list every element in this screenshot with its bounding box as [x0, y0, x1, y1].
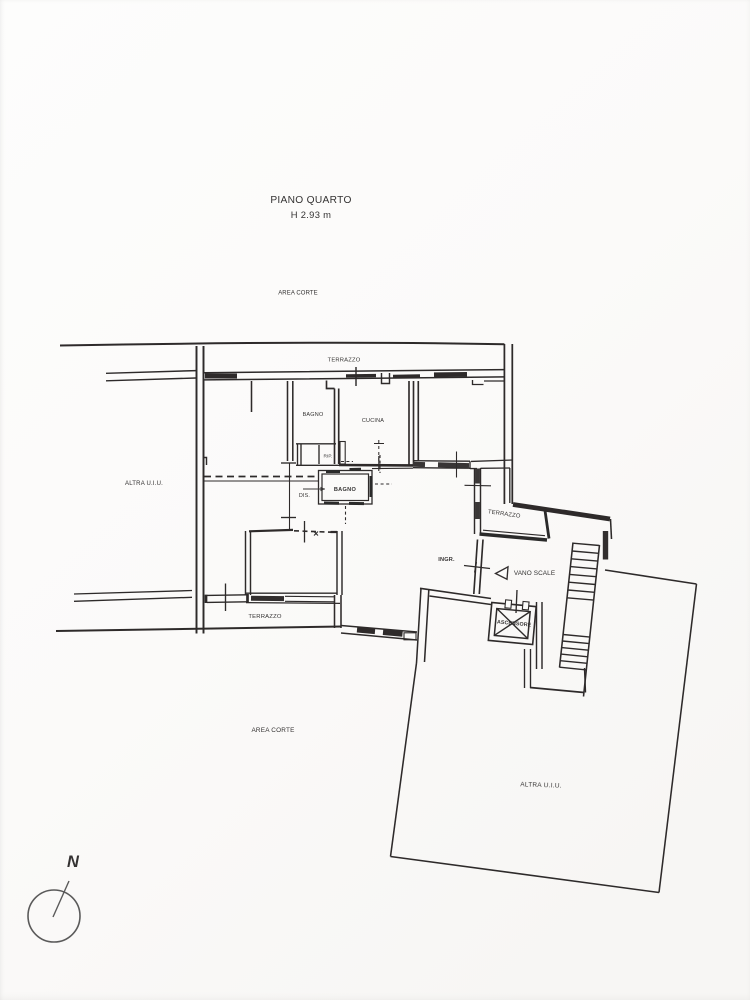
svg-text:ALTRA U.I.U.: ALTRA U.I.U.: [520, 781, 562, 789]
svg-text:INGR.: INGR.: [438, 557, 455, 563]
svg-text:RIP.: RIP.: [324, 454, 333, 459]
svg-text:TERRAZZO: TERRAZZO: [248, 614, 282, 620]
svg-text:PIANO QUARTO: PIANO QUARTO: [270, 195, 351, 206]
svg-text:AREA CORTE: AREA CORTE: [251, 727, 294, 734]
svg-text:H 2.93 m: H 2.93 m: [291, 209, 331, 220]
svg-text:CUCINA: CUCINA: [362, 418, 384, 424]
svg-text:N: N: [67, 853, 80, 871]
svg-text:ALTRA U.I.U.: ALTRA U.I.U.: [125, 481, 163, 487]
svg-text:DIS.: DIS.: [299, 493, 310, 499]
svg-text:AREA CORTE: AREA CORTE: [278, 291, 318, 297]
svg-text:BAGNO: BAGNO: [334, 487, 357, 493]
svg-text:VANO SCALE: VANO SCALE: [514, 570, 555, 577]
svg-text:TERRAZZO: TERRAZZO: [328, 358, 361, 364]
svg-text:BAGNO: BAGNO: [303, 412, 324, 418]
